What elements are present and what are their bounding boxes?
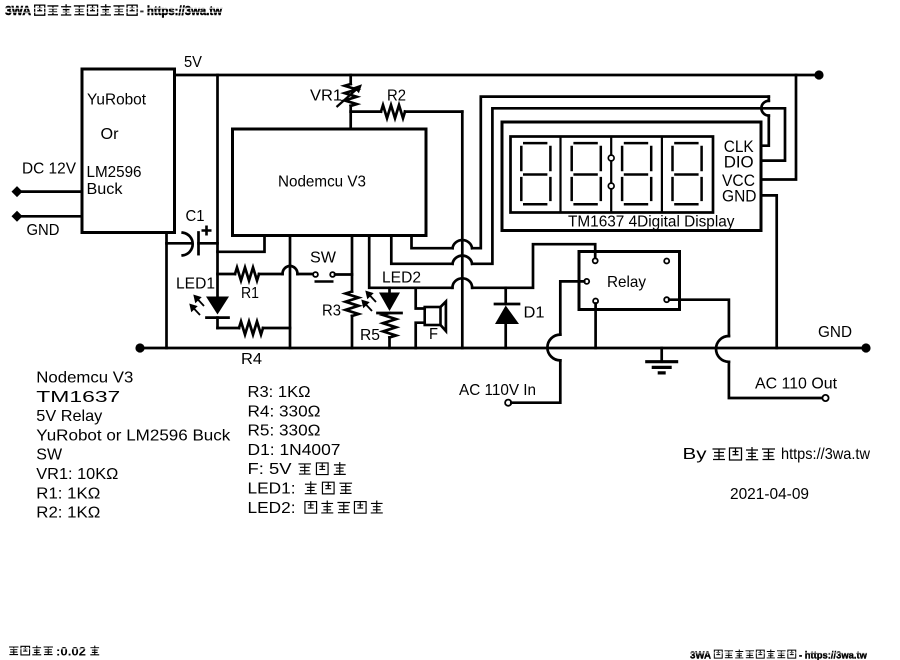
svg-text:LED1: LED1	[176, 276, 215, 293]
svg-text:YuRobot or LM2596 Buck: YuRobot or LM2596 Buck	[36, 427, 231, 444]
svg-text:F: 5V: F: 5V	[248, 461, 292, 478]
svg-text:3WA: 3WA	[5, 3, 32, 18]
svg-text:Buck: Buck	[87, 181, 124, 198]
svg-text:D1: 1N4007: D1: 1N4007	[248, 442, 341, 459]
svg-text:AC 110 Out: AC 110 Out	[755, 376, 838, 393]
svg-text:LED2: LED2	[382, 269, 421, 286]
svg-text:https://3wa.tw: https://3wa.tw	[781, 446, 870, 463]
svg-text:LED1:: LED1:	[248, 481, 296, 498]
svg-text:R3: 1KΩ: R3: 1KΩ	[248, 384, 311, 401]
svg-text:Or: Or	[101, 126, 120, 143]
svg-text:AC 110V In: AC 110V In	[459, 382, 536, 399]
svg-text:By: By	[683, 446, 707, 463]
svg-text:GND: GND	[27, 222, 60, 239]
svg-text:VR1: 10KΩ: VR1: 10KΩ	[36, 466, 118, 483]
svg-text:R4: R4	[241, 351, 262, 368]
svg-text:R5: 330Ω: R5: 330Ω	[248, 423, 321, 440]
svg-text:GND: GND	[818, 324, 852, 341]
svg-text:D1: D1	[524, 305, 545, 322]
svg-text:R2: 1KΩ: R2: 1KΩ	[36, 505, 100, 522]
svg-text:LED2:: LED2:	[248, 500, 296, 517]
svg-text:- https://3wa.tw: - https://3wa.tw	[140, 3, 223, 18]
svg-text:R4: 330Ω: R4: 330Ω	[248, 403, 321, 420]
svg-text:YuRobot: YuRobot	[87, 92, 147, 109]
svg-text:GND: GND	[722, 187, 757, 206]
svg-text:3WA: 3WA	[690, 650, 711, 660]
svg-text:- https://3wa.tw: - https://3wa.tw	[799, 650, 868, 660]
svg-text:5V: 5V	[184, 54, 202, 71]
svg-text:R3: R3	[322, 303, 341, 320]
svg-text:2021-04-09: 2021-04-09	[730, 486, 809, 503]
svg-text:TM1637: TM1637	[36, 389, 120, 406]
svg-text:DIO: DIO	[724, 152, 754, 171]
svg-text:Nodemcu V3: Nodemcu V3	[36, 370, 133, 387]
svg-text:R1: R1	[241, 285, 259, 302]
svg-text:VR1: VR1	[310, 88, 342, 105]
svg-text:R1: 1KΩ: R1: 1KΩ	[36, 485, 100, 502]
svg-text:Nodemcu V3: Nodemcu V3	[278, 174, 366, 191]
svg-text:5V Relay: 5V Relay	[36, 408, 102, 425]
svg-text:F: F	[429, 326, 438, 343]
svg-text:LM2596: LM2596	[87, 164, 142, 181]
svg-text:DC 12V: DC 12V	[22, 161, 76, 178]
svg-text:R2: R2	[387, 88, 406, 105]
svg-text:Relay: Relay	[607, 274, 646, 291]
svg-text:C1: C1	[186, 208, 205, 225]
svg-text:SW: SW	[36, 447, 63, 464]
svg-text:R5: R5	[360, 327, 380, 344]
svg-text:TM1637 4Digital Display: TM1637 4Digital Display	[568, 214, 735, 231]
svg-text:SW: SW	[310, 250, 337, 267]
